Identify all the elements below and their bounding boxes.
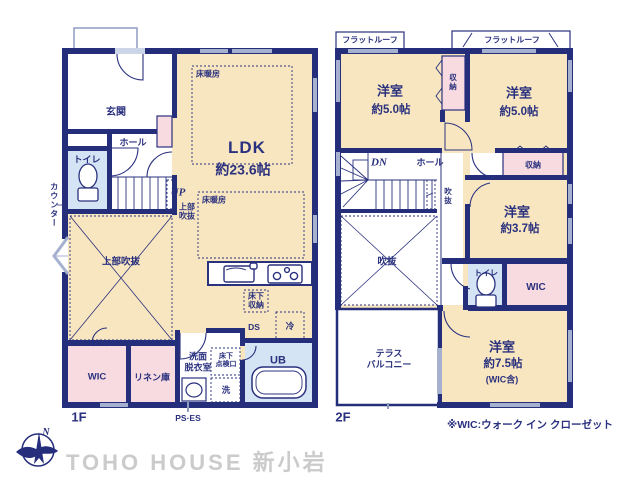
label-stairs-dn: DN bbox=[371, 157, 387, 170]
room-label-wic-1f: WIC bbox=[88, 371, 106, 382]
room-label-washroom: 洗面 脱衣室 bbox=[184, 351, 211, 372]
label-floor1: 1F bbox=[71, 409, 86, 424]
label-void-small-2f: 吹 抜 bbox=[444, 188, 452, 206]
room-label-ldk: LDK bbox=[228, 138, 266, 158]
room-label-bed4: 洋室 bbox=[489, 339, 515, 354]
label-ps-es: PS·ES bbox=[175, 413, 201, 423]
label-ds: DS bbox=[248, 322, 260, 332]
compass-icon bbox=[16, 432, 58, 466]
label-stairs-up: UP bbox=[171, 187, 186, 200]
toilet-icon-1f bbox=[78, 164, 98, 201]
label-floor2: 2F bbox=[335, 409, 350, 424]
sink-icon bbox=[224, 263, 257, 282]
label-fridge: 冷 bbox=[286, 321, 295, 331]
label-floor-heating-a: 床暖房 bbox=[196, 69, 220, 78]
stove-icon bbox=[268, 265, 302, 283]
label-underfloor-storage: 床下 収納 bbox=[248, 292, 264, 311]
label-void-large-1f: 上部吹抜 bbox=[102, 256, 140, 267]
label-closet-vertical: 収 納 bbox=[449, 74, 457, 92]
room-label-bed3: 洋室 bbox=[504, 204, 530, 219]
room-label-toilet-1f: トイレ bbox=[73, 155, 100, 166]
label-bed3-size: 約3.7帖 bbox=[501, 223, 540, 237]
label-bed1-size: 約5.0帖 bbox=[372, 104, 411, 118]
label-floor-heating-b: 床暖房 bbox=[202, 195, 226, 204]
room-label-wic-2f: WIC bbox=[526, 282, 545, 294]
label-ldk-size: 約23.6帖 bbox=[215, 162, 270, 179]
label-bed4-note: (WIC含) bbox=[486, 375, 519, 386]
label-bed4-size: 約7.5帖 bbox=[484, 358, 523, 372]
label-closet-horizontal: 収納 bbox=[525, 160, 541, 169]
watermark-logo: TOHO HOUSE 新小岩 bbox=[66, 445, 328, 477]
room-label-hall-2f: ホール bbox=[416, 158, 443, 169]
washbasin-icon bbox=[182, 378, 206, 401]
label-flat-roof-right: フラットルーフ bbox=[484, 35, 540, 44]
room-label-terrace: テラス バルコニー bbox=[367, 348, 412, 369]
label-counter: カウンター bbox=[49, 183, 58, 228]
room-label-bed2: 洋室 bbox=[506, 85, 532, 100]
shoe-cabinet bbox=[157, 116, 172, 147]
kitchen-counter bbox=[208, 262, 312, 285]
bathtub-icon bbox=[252, 367, 306, 398]
room-label-genkan: 玄関 bbox=[106, 107, 126, 119]
label-void-small-1f: 上部 吹抜 bbox=[179, 203, 195, 222]
room-label-bath: UB bbox=[270, 355, 286, 368]
compass-north-label: N bbox=[42, 427, 49, 439]
label-bed2-size: 約5.0帖 bbox=[500, 106, 539, 120]
room-label-linen: リネン庫 bbox=[134, 373, 170, 384]
label-underfloor-hatch: 床下 点検口 bbox=[216, 353, 237, 370]
label-flat-roof-left: フラットルーフ bbox=[342, 35, 398, 44]
toilet-icon-2f bbox=[476, 273, 496, 307]
room-label-hall-1f: ホール bbox=[119, 138, 146, 149]
room-label-bed1: 洋室 bbox=[377, 83, 403, 98]
label-laundry: 洗 bbox=[222, 385, 231, 395]
label-wic-note: ※WIC:ウォーク イン クローゼット bbox=[447, 419, 613, 431]
floorplan-geometry bbox=[0, 0, 640, 480]
floorplan-page: 玄関 ホール トイレ カウンター LDK 約23.6帖 床暖房 床暖房 UP 上… bbox=[0, 0, 640, 480]
room-label-toilet-2f: トイレ bbox=[474, 268, 498, 277]
label-void-large-2f: 吹抜 bbox=[377, 256, 396, 267]
